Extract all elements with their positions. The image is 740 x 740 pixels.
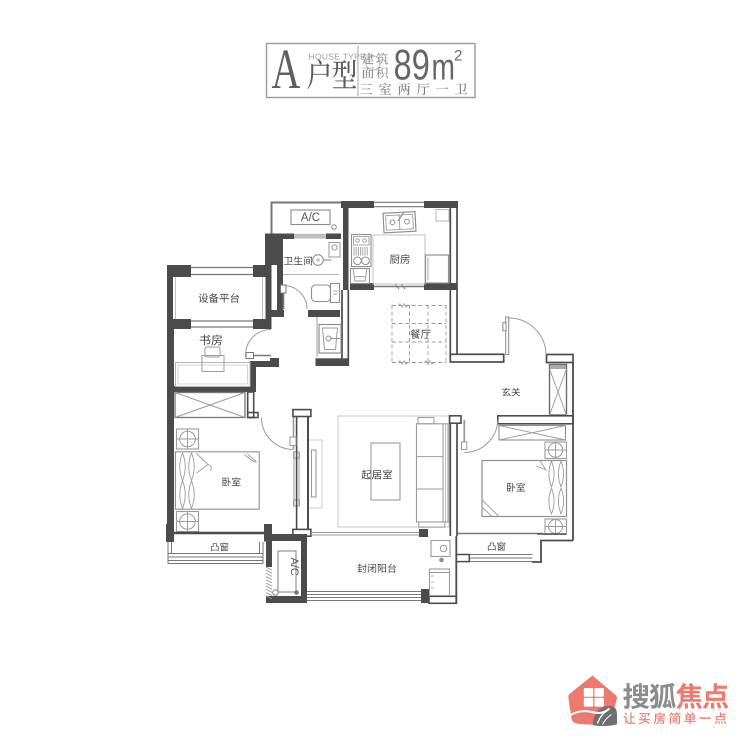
svg-text:A/C: A/C xyxy=(301,212,320,224)
